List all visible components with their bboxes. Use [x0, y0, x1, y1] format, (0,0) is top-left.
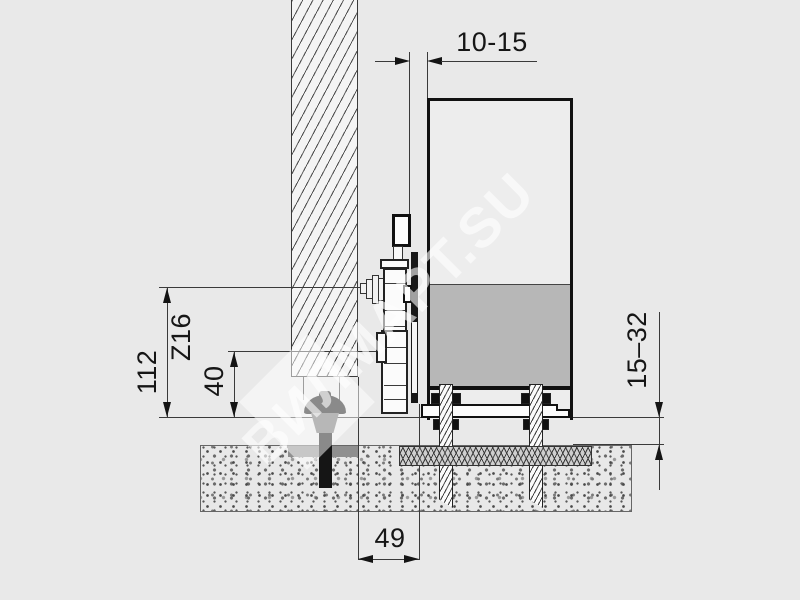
carriage-seam-7	[384, 399, 406, 400]
ext-line-carriage-face	[409, 52, 410, 214]
floor-bolt-collar	[311, 413, 339, 433]
guide-plate-slot	[412, 322, 417, 393]
technical-drawing-canvas: 10-15 112 Z16 40 15–32 49 ВИЛМАРТ.SU	[0, 0, 800, 600]
carriage-knob	[376, 332, 387, 363]
dim-15-32-arrow-top	[655, 402, 663, 417]
carriage-seam-6	[384, 385, 406, 386]
wall-slot-line-left	[303, 377, 304, 400]
wall-section-hatched	[291, 0, 358, 377]
dim-10-15-tail-left	[375, 61, 396, 62]
carriage-seam-1	[385, 283, 405, 284]
dim-10-15-arrow-right	[427, 57, 442, 65]
dim-10-15-label: 10-15	[432, 27, 552, 57]
dim-49-arrow-left	[358, 555, 373, 563]
dim-112-label: 112	[132, 332, 162, 412]
wall-slot-line-right	[339, 377, 340, 400]
ref-line-floor-top	[573, 444, 664, 445]
dim-40-label: 40	[199, 351, 229, 411]
dim-49-label: 49	[355, 523, 425, 553]
carriage-seam-5	[384, 363, 406, 364]
dim-49-arrow-right	[404, 555, 419, 563]
tensioner-box	[392, 214, 411, 247]
bottom-rail-step	[556, 409, 570, 418]
dim-40-arrow-top	[230, 352, 238, 367]
carriage-seam-4	[384, 347, 406, 348]
mortar-block	[399, 446, 592, 466]
dim-40-arrow-bottom	[230, 402, 238, 417]
dim-15-32-arrow-bottom	[655, 445, 663, 460]
ref-line-bolt-top	[228, 351, 376, 352]
dim-10-15-arrow-left	[395, 57, 410, 65]
dim-15-32-label: 15–32	[622, 290, 652, 410]
ref-line-track-bottom	[159, 417, 664, 418]
dim-10-15-tail-right	[441, 61, 537, 62]
carriage-seam-2	[385, 310, 405, 311]
dim-112-arrow-bottom	[163, 402, 171, 417]
dim-z16-label: Z16	[166, 297, 196, 377]
ref-line-carriage-top	[159, 287, 376, 288]
dim-15-32-line	[659, 312, 660, 490]
panel-gray-insert	[430, 284, 570, 390]
carriage-seam-3	[385, 326, 405, 327]
guide-side-box	[403, 285, 412, 303]
